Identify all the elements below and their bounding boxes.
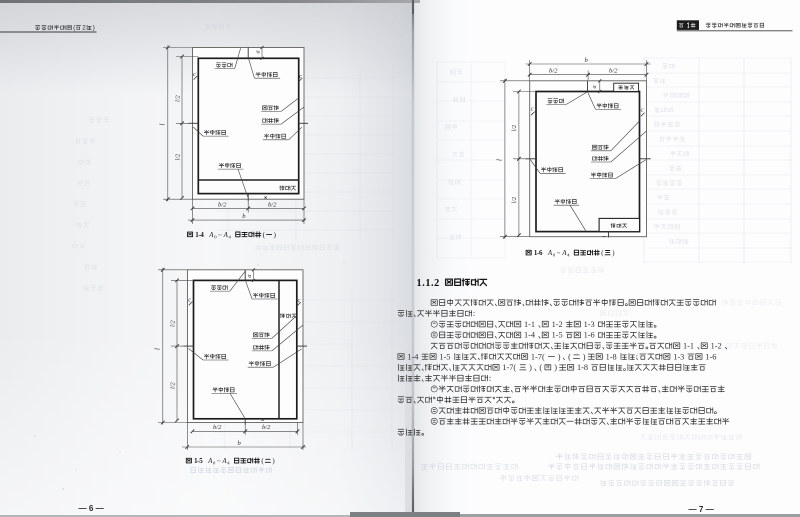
svg-text:4: 4 bbox=[567, 253, 570, 258]
svg-text:— 7 —: — 7 — bbox=[689, 505, 715, 514]
svg-text:1-2: 1-2 bbox=[552, 320, 563, 329]
svg-text:1-8: 1-8 bbox=[606, 352, 617, 361]
svg-text:(: ( bbox=[263, 232, 266, 239]
svg-text:1-6: 1-6 bbox=[705, 352, 716, 361]
svg-text:c: c bbox=[641, 107, 644, 114]
svg-text:1-2: 1-2 bbox=[711, 342, 722, 351]
svg-text:b/2: b/2 bbox=[218, 201, 227, 208]
svg-text:1-6: 1-6 bbox=[534, 250, 543, 257]
svg-text:a: a bbox=[255, 50, 262, 53]
svg-text:): ) bbox=[274, 232, 276, 239]
svg-text:(: ( bbox=[568, 352, 571, 361]
svg-text:): ) bbox=[272, 458, 274, 465]
svg-text:2: 2 bbox=[82, 25, 86, 32]
svg-text:b: b bbox=[238, 440, 242, 447]
svg-text:1-5: 1-5 bbox=[194, 458, 203, 465]
svg-text:— 6 —: — 6 — bbox=[79, 504, 105, 513]
svg-text:l/2: l/2 bbox=[174, 153, 181, 161]
svg-text:): ) bbox=[612, 250, 614, 257]
svg-text:l/2: l/2 bbox=[169, 319, 176, 327]
svg-text:l/2: l/2 bbox=[169, 381, 176, 389]
svg-text:4: 4 bbox=[229, 234, 232, 239]
svg-text:1-7(: 1-7( bbox=[531, 352, 545, 361]
svg-text:c: c bbox=[188, 297, 191, 304]
svg-text:1-4: 1-4 bbox=[524, 331, 536, 340]
svg-text:1-3: 1-3 bbox=[584, 320, 595, 329]
svg-text:4: 4 bbox=[227, 461, 230, 466]
svg-text:b/2: b/2 bbox=[609, 68, 618, 75]
svg-text:~: ~ bbox=[217, 458, 221, 465]
svg-text:b/2: b/2 bbox=[213, 424, 222, 431]
svg-text:): ) bbox=[93, 25, 95, 32]
svg-text:1-3: 1-3 bbox=[673, 352, 684, 361]
svg-text:~: ~ bbox=[557, 250, 561, 257]
svg-text:(: ( bbox=[261, 458, 264, 465]
svg-text:): ) bbox=[583, 352, 586, 361]
svg-text:~: ~ bbox=[218, 232, 222, 239]
svg-text:b/2: b/2 bbox=[549, 68, 558, 75]
svg-text:c: c bbox=[531, 106, 534, 113]
svg-text:b: b bbox=[242, 213, 246, 220]
svg-text:1-5: 1-5 bbox=[552, 331, 563, 340]
svg-text:(: ( bbox=[73, 25, 75, 32]
svg-text:1-5: 1-5 bbox=[439, 352, 450, 361]
svg-text:1-7(: 1-7( bbox=[502, 363, 516, 372]
svg-text:1-8: 1-8 bbox=[577, 363, 588, 372]
svg-text:0: 0 bbox=[553, 253, 556, 258]
svg-text:1.1.2: 1.1.2 bbox=[417, 278, 440, 289]
svg-text:): ) bbox=[558, 352, 561, 361]
svg-text:b: b bbox=[585, 57, 589, 64]
svg-text:l/2: l/2 bbox=[511, 196, 518, 204]
svg-text:b/2: b/2 bbox=[268, 201, 277, 208]
svg-text:b/2: b/2 bbox=[262, 424, 271, 431]
svg-text:1-1: 1-1 bbox=[683, 342, 694, 351]
svg-text:l/2: l/2 bbox=[511, 124, 518, 132]
svg-text:0: 0 bbox=[214, 234, 217, 239]
svg-text:): ) bbox=[529, 363, 532, 372]
svg-text:(: ( bbox=[539, 363, 542, 372]
svg-text:0: 0 bbox=[213, 461, 216, 466]
svg-text:1-4: 1-4 bbox=[407, 352, 419, 361]
svg-text:a: a bbox=[246, 275, 253, 278]
svg-text:l: l bbox=[159, 124, 167, 126]
svg-text:): ) bbox=[554, 363, 557, 372]
svg-text:(: ( bbox=[601, 250, 604, 257]
svg-text:c: c bbox=[193, 71, 196, 78]
svg-text:1-6: 1-6 bbox=[584, 331, 595, 340]
svg-text:l: l bbox=[154, 348, 162, 350]
svg-text:a: a bbox=[591, 85, 598, 88]
svg-text:1-4: 1-4 bbox=[195, 232, 204, 239]
svg-text:l/2: l/2 bbox=[174, 94, 181, 102]
svg-text:l: l bbox=[496, 159, 504, 161]
svg-text:1-1: 1-1 bbox=[524, 320, 535, 329]
